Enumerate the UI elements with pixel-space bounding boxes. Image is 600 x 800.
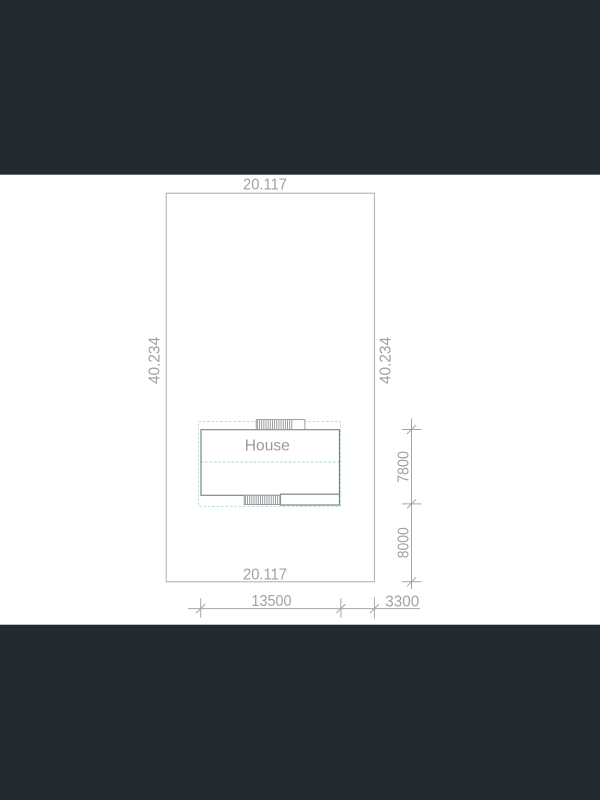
svg-text:40.234: 40.234 bbox=[147, 337, 164, 384]
svg-text:House: House bbox=[245, 438, 290, 455]
svg-text:20.117: 20.117 bbox=[243, 177, 287, 194]
svg-text:8000: 8000 bbox=[396, 527, 413, 558]
svg-text:20.117: 20.117 bbox=[243, 567, 287, 584]
svg-text:3300: 3300 bbox=[385, 593, 419, 610]
svg-text:40.234: 40.234 bbox=[378, 337, 395, 384]
svg-text:13500: 13500 bbox=[252, 593, 292, 610]
svg-text:7800: 7800 bbox=[396, 451, 413, 483]
